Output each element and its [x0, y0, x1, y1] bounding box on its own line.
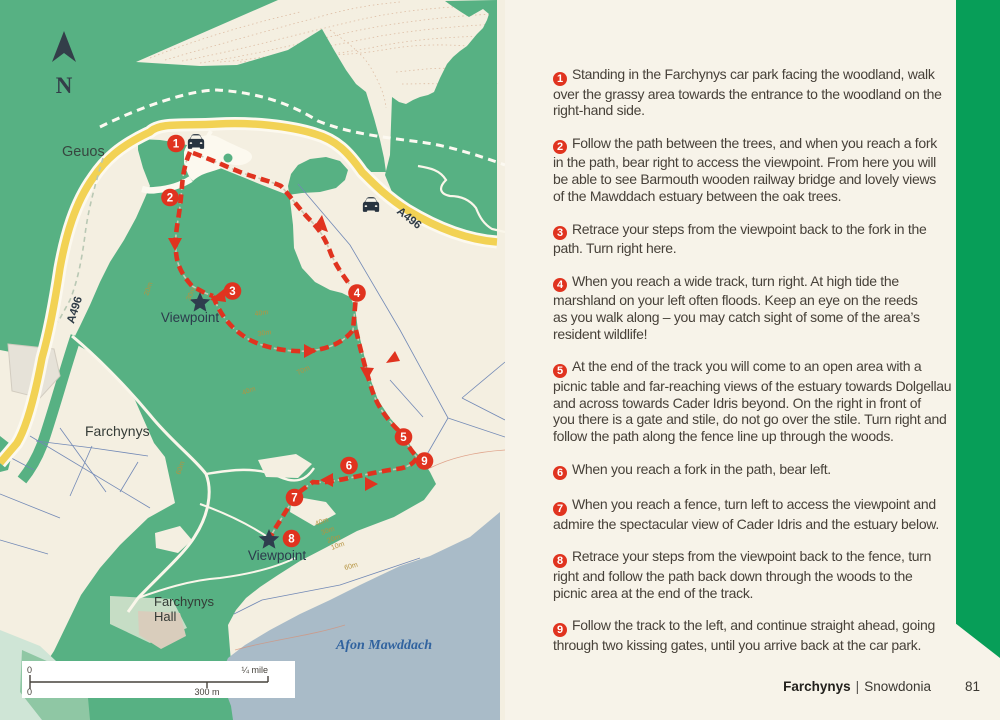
- svg-text:7: 7: [291, 493, 297, 505]
- svg-text:6: 6: [346, 461, 352, 473]
- svg-text:300 m: 300 m: [194, 687, 219, 697]
- svg-text:8: 8: [288, 534, 295, 546]
- svg-text:1: 1: [173, 139, 180, 151]
- svg-text:Hall: Hall: [154, 609, 177, 624]
- svg-text:Viewpoint: Viewpoint: [248, 548, 307, 563]
- svg-text:Geuos: Geuos: [62, 144, 105, 160]
- svg-text:¼ mile: ¼ mile: [241, 665, 268, 675]
- svg-text:Viewpoint: Viewpoint: [161, 310, 220, 325]
- svg-text:3: 3: [229, 286, 235, 298]
- svg-text:2: 2: [167, 193, 173, 205]
- svg-text:9: 9: [421, 456, 427, 468]
- svg-text:4: 4: [354, 288, 361, 300]
- svg-text:Farchynys: Farchynys: [85, 423, 150, 439]
- svg-text:Farchynys: Farchynys: [154, 594, 214, 609]
- svg-text:0: 0: [27, 665, 32, 675]
- svg-text:Afon Mawddach: Afon Mawddach: [335, 638, 432, 653]
- svg-text:N: N: [56, 73, 73, 98]
- svg-text:5: 5: [400, 432, 407, 444]
- svg-text:0: 0: [27, 687, 32, 697]
